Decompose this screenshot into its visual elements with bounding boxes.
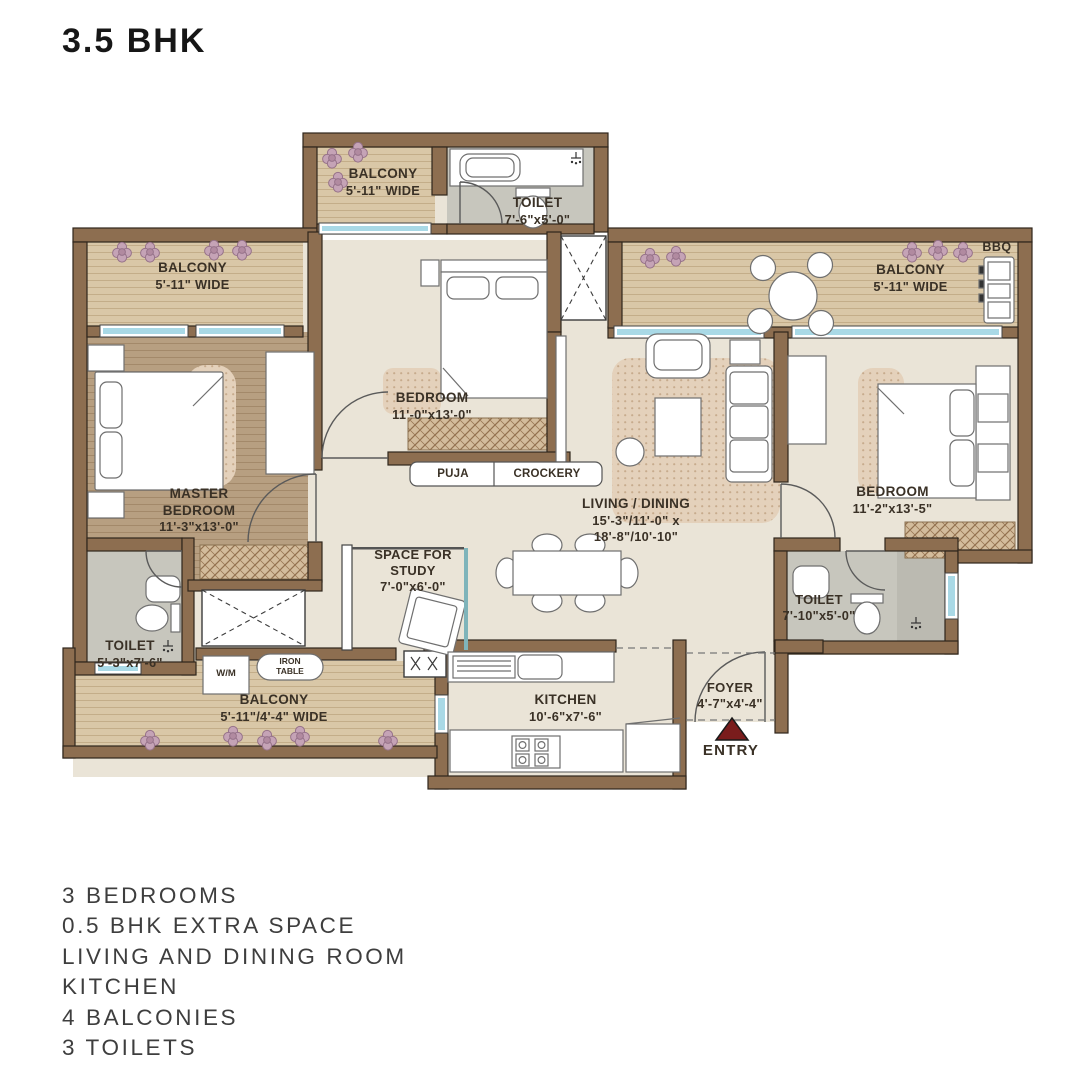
label-toilet-right: TOILET 7'-10"x5'-0" bbox=[770, 592, 868, 624]
label-kitchen: KITCHEN 10'-6"x7'-6" bbox=[498, 692, 633, 725]
master-dresser bbox=[266, 352, 314, 474]
feature-item: LIVING AND DINING ROOM bbox=[62, 942, 407, 972]
ottoman bbox=[616, 438, 644, 466]
label-balcony-left: BALCONY 5'-11" WIDE bbox=[115, 260, 270, 293]
label-entry: ENTRY bbox=[692, 742, 770, 761]
master-wardrobe bbox=[200, 545, 322, 579]
side-table bbox=[730, 340, 760, 364]
floor-plan-page: 3.5 BHK BALCONY 5'-11" WIDE TOILET 7'-6"… bbox=[0, 0, 1080, 1080]
bedroom-mid-wardrobe bbox=[408, 418, 547, 450]
coffee-table bbox=[655, 398, 701, 456]
feature-list: 3 BEDROOMS 0.5 BHK EXTRA SPACE LIVING AN… bbox=[62, 881, 407, 1063]
label-balcony-right: BALCONY 5'-11" WIDE bbox=[833, 262, 988, 295]
label-living-dining: LIVING / DINING 15'-3"/11'-0" x 18'-8"/1… bbox=[565, 496, 707, 544]
label-master-bedroom: MASTER BEDROOM 11'-3"x13'-0" bbox=[128, 486, 270, 535]
label-study: SPACE FOR STUDY 7'-0"x6'-0" bbox=[352, 547, 474, 595]
label-crockery: CROCKERY bbox=[494, 467, 600, 481]
feature-item: KITCHEN bbox=[62, 972, 407, 1002]
right-bedroom-bed bbox=[878, 366, 1010, 500]
label-balcony-top: BALCONY 5'-11" WIDE bbox=[320, 166, 446, 199]
wc-bowl bbox=[136, 605, 168, 631]
label-foyer: FOYER 4'-7"x4'-4" bbox=[684, 680, 776, 712]
label-bedroom-mid: BEDROOM 11'-0"x13'-0" bbox=[366, 390, 498, 423]
balcony-step-box bbox=[404, 651, 446, 677]
label-balcony-bottom: BALCONY 5'-11"/4'-4" WIDE bbox=[190, 692, 358, 725]
label-bedroom-right: BEDROOM 11'-2"x13'-5" bbox=[820, 484, 965, 517]
feature-item: 3 TOILETS bbox=[62, 1033, 407, 1063]
feature-item: 0.5 BHK EXTRA SPACE bbox=[62, 911, 407, 941]
wc-tank bbox=[171, 604, 180, 632]
label-iron-table: IRON TABLE bbox=[257, 657, 323, 677]
dining-table bbox=[513, 551, 621, 595]
round-table bbox=[769, 272, 817, 320]
kitchen-sink-drainer bbox=[453, 656, 515, 678]
right-bedroom-dresser bbox=[788, 356, 826, 444]
label-toilet-left: TOILET 5'-3"x7'-6" bbox=[78, 638, 182, 671]
label-toilet-top: TOILET 7'-6"x5'-0" bbox=[475, 195, 600, 228]
fridge bbox=[626, 724, 680, 772]
kitchen-sink bbox=[518, 655, 562, 679]
feature-item: 4 BALCONIES bbox=[62, 1003, 407, 1033]
label-washing-machine: W/M bbox=[203, 668, 249, 680]
feature-item: 3 BEDROOMS bbox=[62, 881, 407, 911]
label-bbq: BBQ bbox=[974, 240, 1020, 256]
label-puja: PUJA bbox=[412, 467, 494, 481]
sink bbox=[146, 576, 180, 602]
page-title: 3.5 BHK bbox=[62, 22, 206, 61]
tv-console bbox=[556, 336, 566, 462]
